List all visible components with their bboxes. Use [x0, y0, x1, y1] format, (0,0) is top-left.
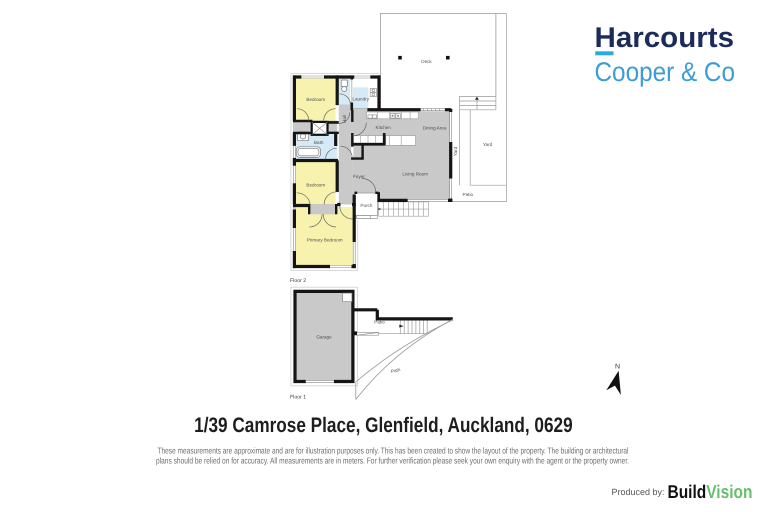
svg-text:Living Room: Living Room [402, 171, 428, 176]
svg-text:Bath: Bath [314, 140, 324, 145]
svg-text:Floor 1: Floor 1 [290, 395, 306, 401]
svg-text:Bedroom: Bedroom [306, 183, 325, 188]
svg-text:Porch: Porch [360, 203, 372, 208]
svg-text:Yard: Yard [483, 142, 493, 147]
svg-text:Patio: Patio [374, 320, 385, 325]
svg-text:Bedroom: Bedroom [306, 97, 325, 102]
svg-text:Produced by:: Produced by: [611, 487, 664, 497]
svg-text:Harcourts: Harcourts [595, 22, 735, 54]
svg-text:Foyer: Foyer [353, 174, 365, 179]
svg-text:Floor 2: Floor 2 [290, 278, 306, 284]
svg-text:Primary Bedroom: Primary Bedroom [307, 238, 343, 243]
svg-text:Deck: Deck [421, 59, 432, 64]
svg-text:Laundry: Laundry [352, 96, 369, 101]
svg-text:plans should be relied on for: plans should be relied on for accuracy. … [156, 456, 629, 466]
svg-text:Cooper & Co: Cooper & Co [595, 57, 736, 87]
svg-text:BuildVision: BuildVision [668, 481, 753, 502]
svg-text:1/39 Camrose Place, Glenfield,: 1/39 Camrose Place, Glenfield, Auckland,… [194, 414, 573, 437]
svg-text:Dining Area: Dining Area [423, 125, 447, 130]
svg-text:N: N [615, 364, 620, 371]
svg-text:Garage: Garage [316, 335, 332, 340]
svg-text:Patio: Patio [463, 192, 474, 197]
svg-text:Yard: Yard [453, 146, 458, 156]
svg-text:Kitchen: Kitchen [376, 125, 392, 130]
svg-text:These measurements are approxi: These measurements are approximate and a… [158, 445, 629, 455]
